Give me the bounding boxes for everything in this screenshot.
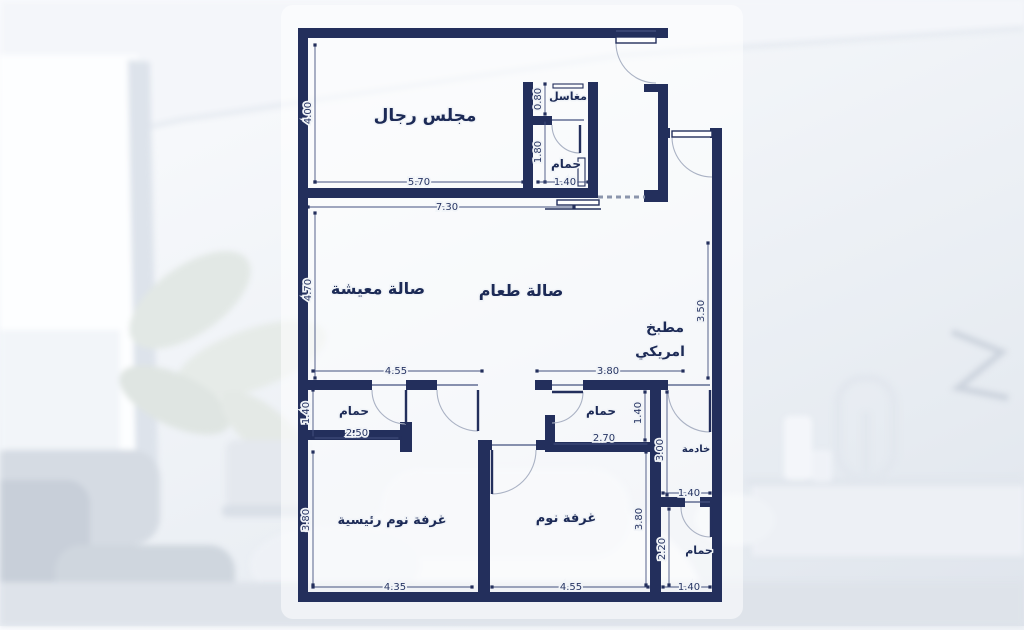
dimension-value-7: 3.50 — [696, 300, 707, 322]
wall — [298, 380, 372, 390]
dimension-tick — [644, 583, 647, 586]
room-label-master-bedroom: غرفة نوم رئيسية — [337, 513, 446, 528]
dimension-value-0: 4.00 — [303, 102, 314, 124]
dimension-tick — [313, 180, 316, 183]
dimension-tick — [644, 450, 647, 453]
dimension-tick — [665, 493, 668, 496]
wall — [298, 28, 668, 38]
dimension-tick — [313, 211, 316, 214]
dimension-tick — [706, 376, 709, 379]
dimension-value-10: 1.40 — [301, 402, 312, 424]
wall — [644, 190, 668, 202]
room-label-kitchen-line2: امريكي — [635, 344, 685, 360]
dimension-tick — [490, 585, 493, 588]
dimension-tick — [643, 438, 646, 441]
dimension-tick — [681, 369, 684, 372]
dimension-value-18: 4.55 — [560, 582, 582, 593]
dimension-tick — [706, 241, 709, 244]
room-label-bath-middle: حمام — [586, 404, 616, 419]
floor-plan-drawing: 4.005.700.801.801.407.304.703.504.553.80… — [0, 0, 1024, 626]
wall — [588, 82, 598, 188]
wall — [406, 380, 437, 390]
room-label-bath-bottom: حمام — [685, 544, 713, 557]
room-label-bedroom: غرفة نوم — [536, 511, 596, 526]
dimension-value-15: 1.40 — [678, 488, 700, 499]
dimension-tick — [667, 583, 670, 586]
dimension-tick — [708, 491, 711, 494]
room-label-majlis: مجلس رجال — [374, 106, 477, 126]
kitchen-door-leaf — [672, 131, 712, 137]
wall — [298, 188, 598, 198]
dimension-tick — [661, 491, 664, 494]
dimension-value-8: 4.55 — [385, 366, 407, 377]
wall — [536, 440, 545, 450]
dimension-tick — [311, 369, 314, 372]
dimension-value-21: 1.40 — [678, 582, 700, 593]
dimension-tick — [398, 436, 401, 439]
dimension-tick — [306, 205, 309, 208]
wall — [478, 440, 490, 602]
wall — [658, 128, 670, 138]
dimension-tick — [313, 43, 316, 46]
dimension-value-16: 3.80 — [301, 509, 312, 531]
dimension-tick — [543, 118, 546, 121]
dimension-tick — [311, 585, 314, 588]
dimension-tick — [665, 390, 668, 393]
wall — [523, 82, 533, 188]
dimension-tick — [311, 436, 314, 439]
wall — [400, 422, 412, 452]
room-label-washbasins: مغاسل — [549, 90, 587, 103]
entrance-door-leaf — [616, 37, 656, 43]
dimension-tick — [667, 507, 670, 510]
dimension-tick — [647, 442, 650, 445]
room-label-bath-top: حمام — [551, 157, 581, 172]
wall — [712, 128, 722, 602]
wall — [650, 380, 661, 602]
dimension-tick — [536, 180, 539, 183]
dimension-value-2: 0.80 — [533, 88, 544, 110]
dimension-tick — [311, 388, 314, 391]
dimension-tick — [311, 450, 314, 453]
dimension-tick — [572, 205, 575, 208]
dimension-value-3: 1.80 — [533, 141, 544, 163]
dimension-value-1: 5.70 — [408, 177, 430, 188]
dimension-tick — [550, 442, 553, 445]
dimension-value-12: 1.40 — [633, 402, 644, 424]
dimension-tick — [543, 112, 546, 115]
dimension-tick — [521, 180, 524, 183]
dimension-value-13: 2.70 — [593, 433, 615, 444]
screenshot-root: { "scene": { "description": "apartment f… — [0, 0, 1024, 626]
dimension-value-14: 3.00 — [655, 439, 666, 461]
room-label-kitchen-line1: مطبخ — [646, 320, 684, 336]
dimension-value-6: 4.70 — [303, 279, 314, 301]
dimension-tick — [470, 585, 473, 588]
dimension-value-20: 2.20 — [657, 538, 668, 560]
dimension-tick — [480, 369, 483, 372]
dimension-value-9: 3.80 — [597, 366, 619, 377]
dimension-tick — [586, 180, 589, 183]
dimension-tick — [643, 390, 646, 393]
dimension-tick — [708, 585, 711, 588]
room-label-living-hall: صالة معيشة — [331, 279, 425, 298]
dimension-tick — [661, 585, 664, 588]
sliding-door-panel — [557, 200, 599, 205]
dimension-value-5: 7.30 — [436, 202, 458, 213]
dimension-value-19: 3.80 — [634, 508, 645, 530]
room-label-bath-left: حمام — [339, 404, 369, 419]
dimension-tick — [543, 82, 546, 85]
wall — [644, 84, 658, 92]
dimension-value-17: 4.35 — [384, 582, 406, 593]
room-label-maid-room: خادمة — [682, 444, 710, 455]
room-label-dining-hall: صالة طعام — [479, 281, 564, 300]
wall — [535, 380, 552, 390]
wall — [658, 84, 668, 202]
floor-plan: 4.005.700.801.801.407.304.703.504.553.80… — [0, 0, 1024, 626]
dimension-tick — [313, 376, 316, 379]
dimension-tick — [535, 369, 538, 372]
wall — [523, 116, 552, 125]
dimension-value-4: 1.40 — [554, 177, 576, 188]
dimension-value-11: 2.50 — [346, 428, 368, 439]
